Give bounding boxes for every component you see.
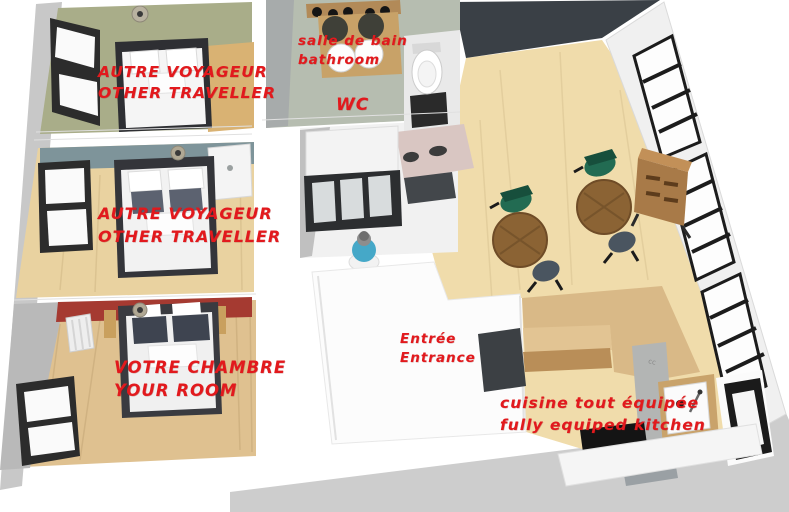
pillow — [130, 50, 160, 74]
radiator — [66, 314, 94, 352]
shower — [304, 126, 402, 232]
accent-pillow — [169, 188, 203, 212]
bedroom-2 — [16, 142, 254, 298]
bedroom3-bed — [104, 302, 226, 418]
toilet-mat — [410, 92, 448, 128]
bedroom2-ceiling-light — [171, 146, 185, 160]
wardrobe — [478, 328, 526, 392]
wall-lamp — [312, 7, 322, 17]
mirror — [322, 16, 348, 42]
bedroom1-ceiling-light — [132, 6, 148, 22]
bedroom-3 — [0, 297, 256, 470]
basin — [355, 40, 383, 68]
island-front — [523, 348, 612, 372]
shower-glass — [340, 178, 364, 220]
bedroom3-ceiling-light — [133, 303, 147, 317]
bedpost — [104, 310, 116, 338]
bedroom1-bed — [115, 38, 212, 132]
mirror — [358, 13, 384, 39]
basin — [327, 44, 355, 72]
duvet-fold — [148, 72, 186, 94]
bedroom2-window — [38, 160, 93, 253]
bedroom-1 — [40, 2, 254, 134]
sink-drain — [676, 400, 684, 408]
pillow — [172, 302, 201, 316]
accent-pillow — [132, 316, 168, 344]
duvet-fold — [146, 212, 194, 236]
shower-glass — [312, 181, 336, 223]
bedroom2-bed — [114, 156, 218, 278]
floor-plan-screenshot: AUTRE VOYAGEUR OTHER TRAVELLER AUTRE VOY… — [0, 0, 789, 512]
kitchen-sink — [664, 382, 710, 434]
pillow — [168, 168, 204, 190]
shower-glass — [368, 175, 392, 217]
bedroom1-window — [50, 18, 100, 126]
accent-pillow — [172, 314, 210, 342]
duvet-fold — [148, 344, 198, 368]
pillow — [128, 170, 162, 192]
floor-plan-render — [0, 0, 789, 512]
pillow — [166, 48, 198, 72]
accent-pillow — [131, 190, 164, 214]
side-desk — [206, 42, 254, 132]
bedroom3-window — [16, 376, 80, 466]
